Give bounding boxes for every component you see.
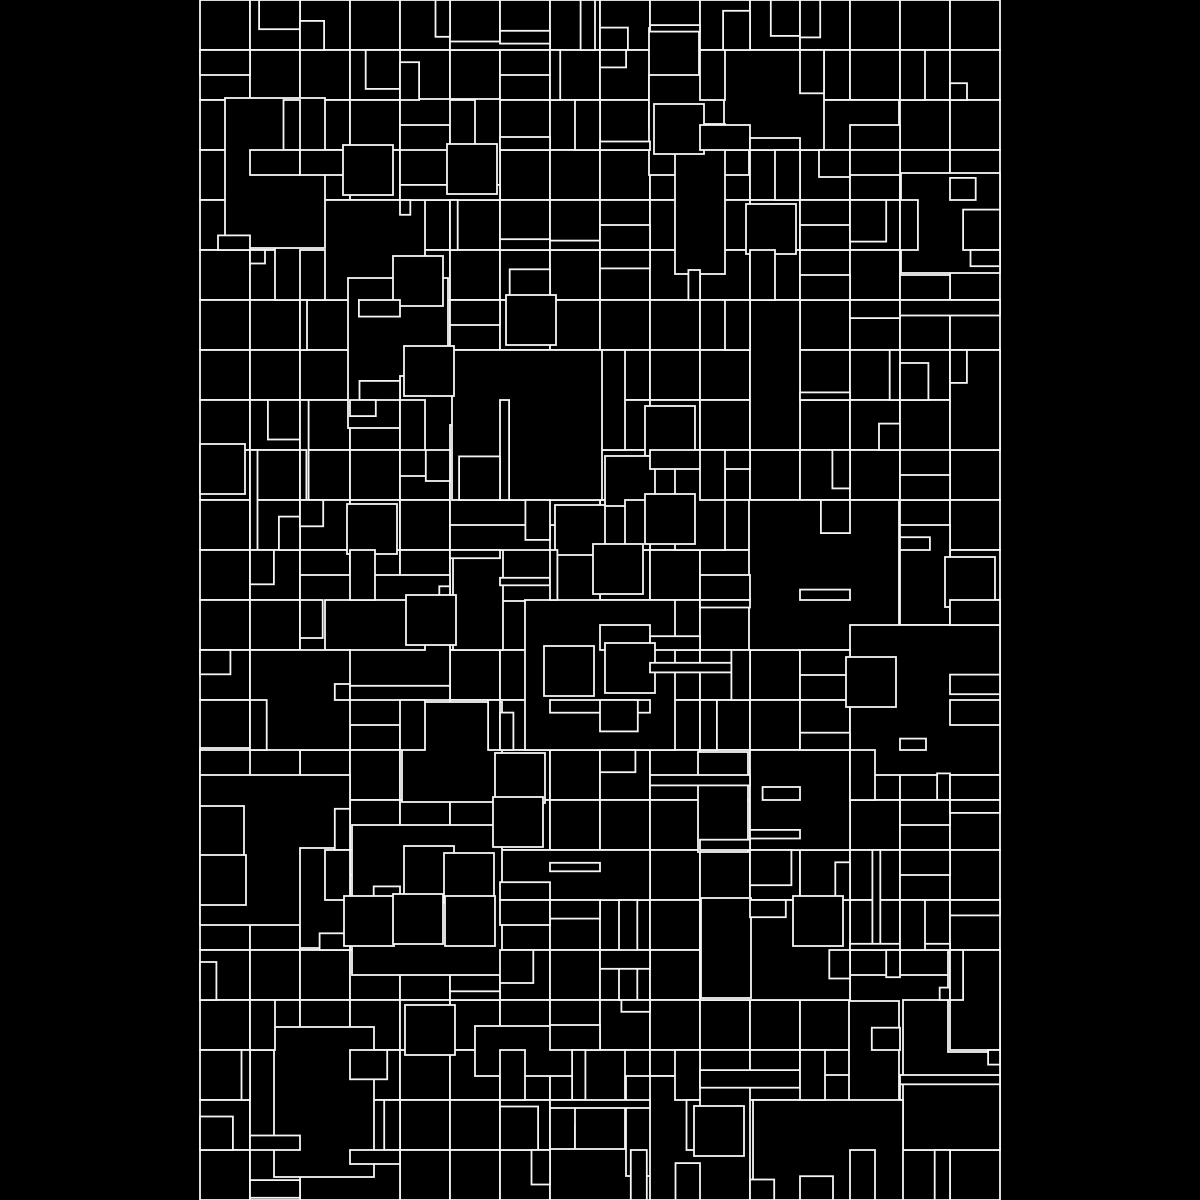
artwork-stage bbox=[0, 0, 1200, 1200]
generative-grid-pattern bbox=[0, 0, 1200, 1200]
rectangle-group bbox=[200, 0, 1000, 1200]
